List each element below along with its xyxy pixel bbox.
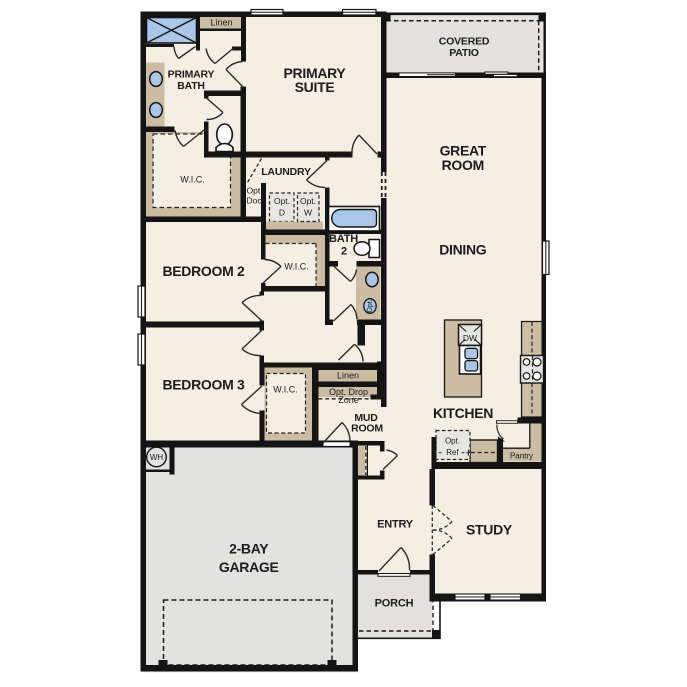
svg-text:PATIO: PATIO	[449, 47, 479, 59]
svg-text:PRIMARY: PRIMARY	[168, 69, 215, 81]
svg-text:GARAGE: GARAGE	[219, 559, 279, 575]
svg-text:Linen: Linen	[337, 371, 359, 381]
svg-text:W.I.C.: W.I.C.	[180, 175, 205, 185]
svg-text:DW: DW	[463, 333, 477, 343]
svg-text:PORCH: PORCH	[375, 598, 414, 610]
svg-text:BEDROOM 3: BEDROOM 3	[162, 377, 245, 393]
svg-text:ROOM: ROOM	[351, 423, 383, 435]
svg-text:ROOM: ROOM	[442, 157, 484, 173]
svg-text:W.I.C.: W.I.C.	[284, 262, 309, 272]
svg-text:Opt.: Opt.	[367, 299, 374, 312]
svg-text:ENTRY: ENTRY	[377, 519, 414, 531]
svg-text:2-BAY: 2-BAY	[229, 541, 269, 557]
svg-text:Linen: Linen	[210, 18, 232, 28]
svg-text:Opt.: Opt.	[274, 196, 290, 206]
svg-text:Opt.: Opt.	[247, 186, 263, 196]
svg-text:KITCHEN: KITCHEN	[433, 405, 493, 421]
svg-text:W.I.C.: W.I.C.	[273, 385, 298, 395]
svg-text:Zone: Zone	[338, 395, 359, 405]
svg-text:BATH: BATH	[329, 233, 358, 245]
svg-text:COVERED: COVERED	[439, 36, 490, 48]
svg-text:Opt.: Opt.	[300, 196, 316, 206]
svg-text:Ref: Ref	[446, 448, 459, 457]
svg-text:BEDROOM 2: BEDROOM 2	[162, 263, 245, 279]
svg-text:Opt.: Opt.	[445, 437, 460, 446]
svg-text:SUITE: SUITE	[295, 79, 335, 95]
svg-text:Pantry: Pantry	[510, 452, 533, 461]
svg-text:STUDY: STUDY	[466, 522, 513, 538]
svg-text:W: W	[304, 208, 312, 218]
svg-text:Door: Door	[247, 196, 266, 206]
svg-text:D: D	[279, 208, 285, 218]
svg-text:WH: WH	[150, 453, 164, 462]
svg-text:DINING: DINING	[439, 242, 487, 258]
svg-text:BATH: BATH	[177, 80, 205, 92]
svg-text:2: 2	[341, 246, 347, 258]
svg-text:LAUNDRY: LAUNDRY	[261, 166, 311, 178]
